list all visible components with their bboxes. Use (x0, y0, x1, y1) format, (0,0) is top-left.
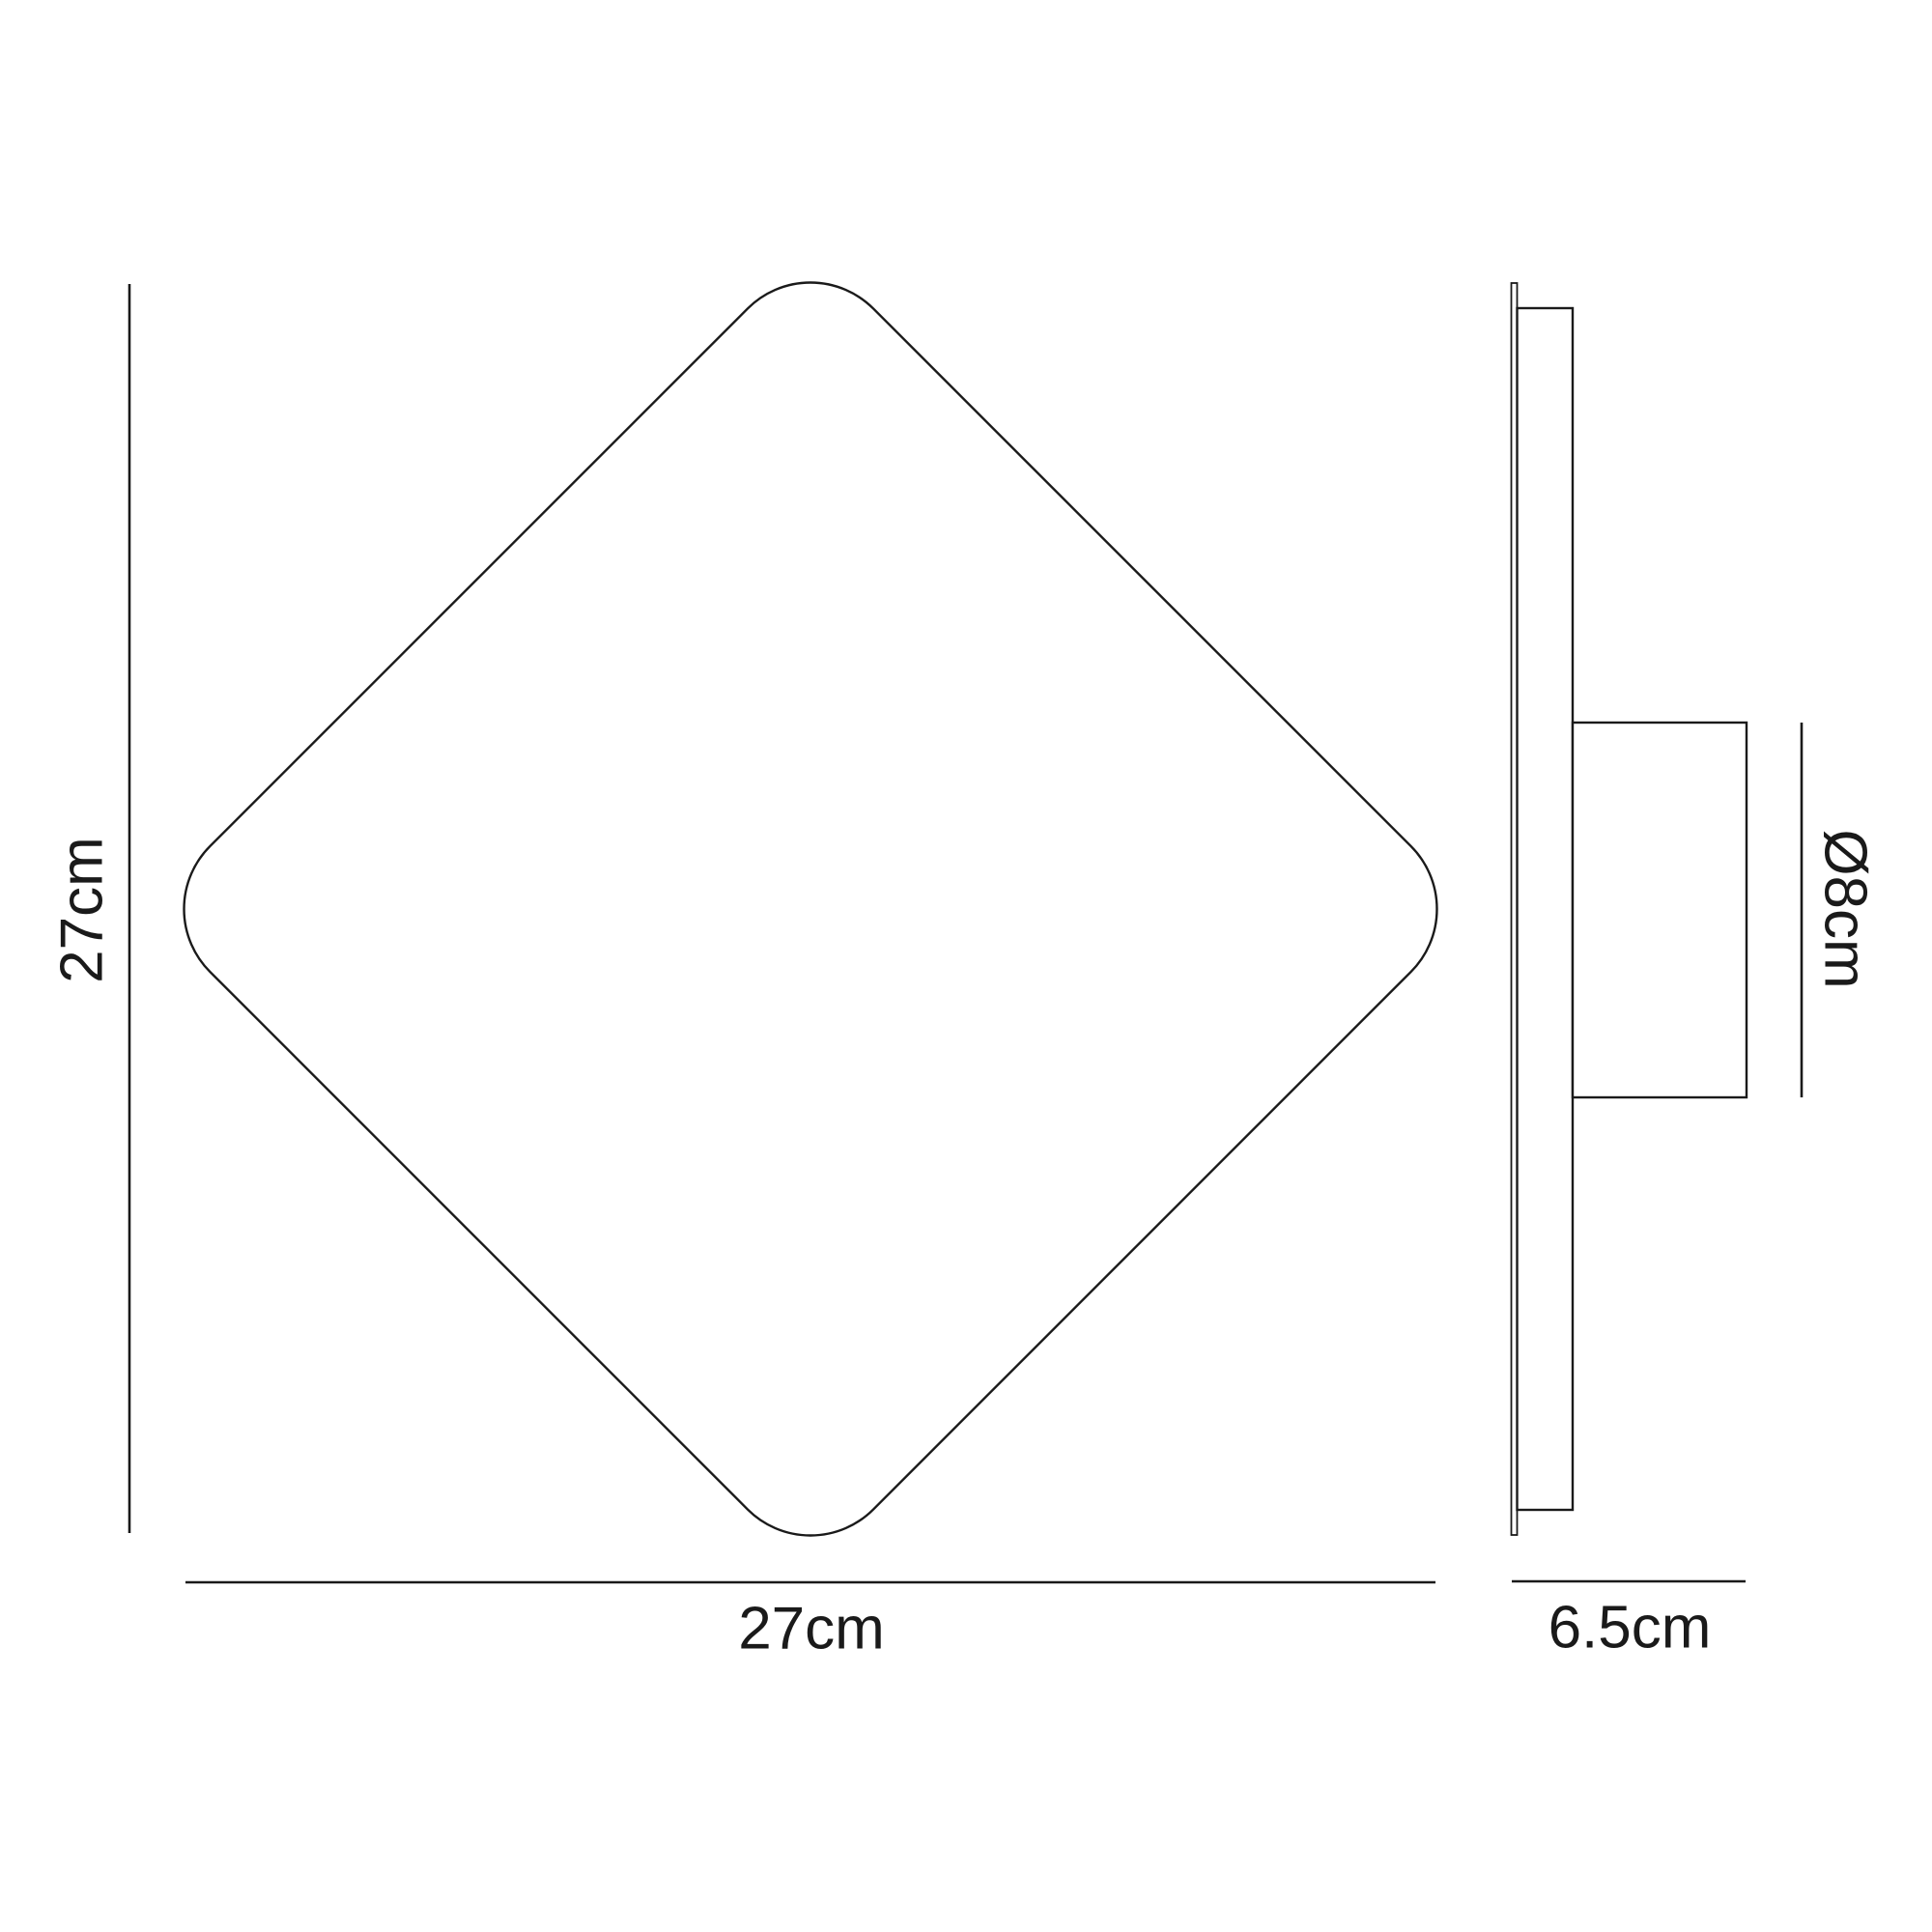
height-dimension-label: 27cm (49, 837, 116, 983)
front-view-diamond-outline (147, 245, 1473, 1572)
side-view-mount-cylinder (1573, 723, 1747, 1097)
side-view-body (1518, 308, 1574, 1510)
depth-dimension-label: 6.5cm (1548, 1595, 1712, 1662)
dimension-drawing-canvas: 27cm 27cm Ø8cm 6.5cm (0, 0, 1932, 1932)
diagram-page: 27cm 27cm Ø8cm 6.5cm (0, 0, 1932, 1932)
mount-diameter-label: Ø8cm (1812, 829, 1879, 988)
width-dimension-label: 27cm (738, 1596, 885, 1662)
